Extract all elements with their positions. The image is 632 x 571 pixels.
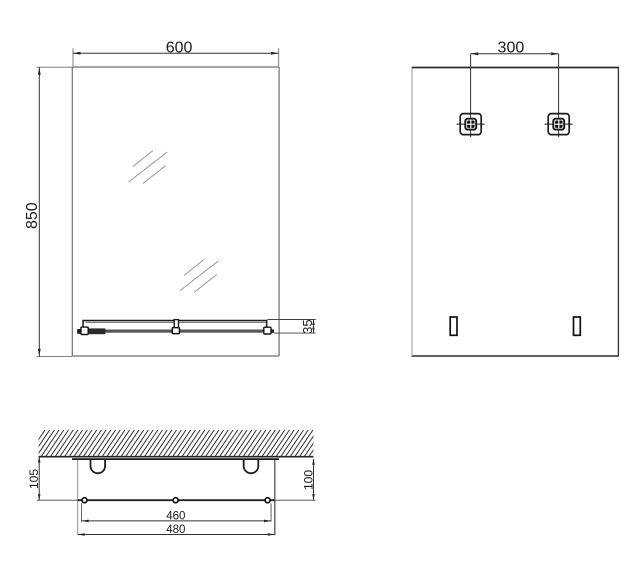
svg-text:105: 105 <box>27 469 41 489</box>
svg-text:300: 300 <box>498 39 525 56</box>
svg-text:480: 480 <box>166 524 185 536</box>
svg-text:600: 600 <box>166 39 193 56</box>
svg-text:100: 100 <box>301 470 315 490</box>
svg-text:35: 35 <box>300 319 315 333</box>
svg-text:460: 460 <box>166 511 185 523</box>
svg-text:850: 850 <box>24 202 41 229</box>
